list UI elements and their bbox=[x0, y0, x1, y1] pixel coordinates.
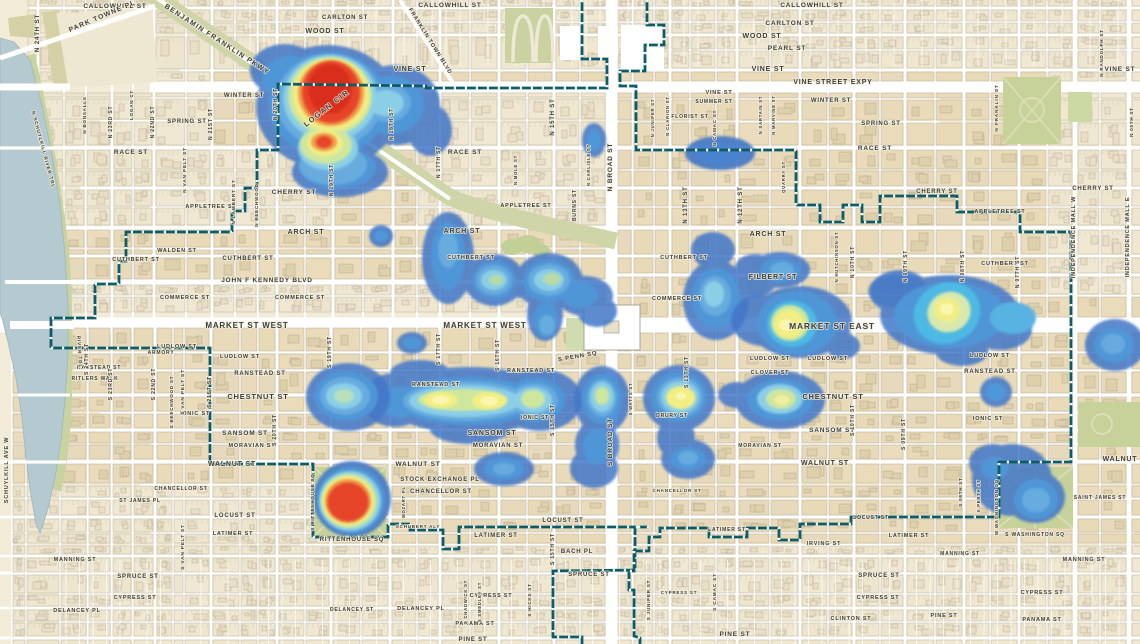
svg-text:BURNS ST: BURNS ST bbox=[572, 189, 578, 221]
svg-text:CHANCELLOR ST: CHANCELLOR ST bbox=[154, 486, 207, 492]
svg-text:IRVING ST: IRVING ST bbox=[807, 541, 842, 547]
svg-text:RANSTEAD ST: RANSTEAD ST bbox=[507, 368, 555, 374]
svg-text:APPLETREE ST: APPLETREE ST bbox=[185, 204, 236, 210]
svg-text:ARCH ST: ARCH ST bbox=[288, 229, 325, 236]
svg-text:WALNUT ST: WALNUT ST bbox=[208, 461, 256, 468]
svg-text:S HICKS ST: S HICKS ST bbox=[527, 583, 532, 616]
svg-text:S PERTH ST: S PERTH ST bbox=[976, 480, 981, 513]
svg-text:S 13TH ST: S 13TH ST bbox=[684, 356, 690, 388]
svg-text:SANSOM ST: SANSOM ST bbox=[809, 427, 855, 434]
svg-text:DELANCEY PL: DELANCEY PL bbox=[53, 608, 101, 614]
svg-text:RANSTEAD ST: RANSTEAD ST bbox=[964, 369, 1015, 375]
svg-text:CYPRESS ST: CYPRESS ST bbox=[1021, 590, 1064, 596]
svg-text:S 17TH ST: S 17TH ST bbox=[436, 333, 442, 365]
svg-text:VINE ST: VINE ST bbox=[752, 66, 785, 73]
svg-text:VINE ST: VINE ST bbox=[706, 90, 733, 96]
svg-text:N BEECHWOOD: N BEECHWOOD bbox=[254, 183, 259, 227]
svg-text:CHERRY ST: CHERRY ST bbox=[916, 189, 958, 195]
svg-text:S CHADWICK ST: S CHADWICK ST bbox=[463, 580, 468, 624]
svg-text:RACE ST: RACE ST bbox=[114, 149, 148, 156]
svg-text:PANAMA ST: PANAMA ST bbox=[455, 621, 494, 627]
svg-text:PEARL ST: PEARL ST bbox=[768, 45, 806, 52]
svg-text:WINTER ST: WINTER ST bbox=[811, 98, 851, 104]
svg-text:CUTHBERT ST: CUTHBERT ST bbox=[112, 257, 160, 263]
svg-text:PINE ST: PINE ST bbox=[459, 637, 488, 643]
svg-text:APPLETREE ST: APPLETREE ST bbox=[974, 209, 1025, 215]
svg-text:CYPRESS ST: CYPRESS ST bbox=[114, 595, 157, 601]
svg-text:LATIMER ST: LATIMER ST bbox=[474, 533, 518, 539]
svg-text:N 13TH ST: N 13TH ST bbox=[683, 186, 689, 223]
svg-text:CLINTON ST: CLINTON ST bbox=[831, 616, 872, 622]
svg-text:W WASHINGTON SQ: W WASHINGTON SQ bbox=[994, 479, 999, 535]
svg-text:WALNUT ST: WALNUT ST bbox=[395, 461, 440, 468]
svg-text:N 15TH ST: N 15TH ST bbox=[550, 98, 556, 135]
svg-text:LUDLOW ST: LUDLOW ST bbox=[808, 356, 848, 362]
svg-text:WALNUT: WALNUT bbox=[1103, 456, 1138, 463]
svg-text:MORAVIAN ST: MORAVIAN ST bbox=[229, 443, 276, 449]
svg-text:CHERRY ST: CHERRY ST bbox=[272, 189, 316, 196]
svg-text:LUDLOW ST: LUDLOW ST bbox=[220, 354, 260, 360]
svg-text:JOHN F KENNEDY BLVD: JOHN F KENNEDY BLVD bbox=[221, 277, 313, 284]
svg-text:PINE ST: PINE ST bbox=[720, 631, 751, 638]
svg-text:N SARTAIN ST: N SARTAIN ST bbox=[758, 96, 763, 135]
svg-text:N CLARION ST: N CLARION ST bbox=[665, 96, 670, 135]
svg-text:N 24TH ST: N 24TH ST bbox=[34, 14, 41, 52]
svg-text:N 23RD ST: N 23RD ST bbox=[108, 106, 114, 139]
svg-text:RITTENHOUSE SQ: RITTENHOUSE SQ bbox=[320, 537, 385, 543]
svg-text:CARLTON ST: CARLTON ST bbox=[322, 15, 368, 21]
svg-text:N 08TH ST: N 08TH ST bbox=[960, 250, 966, 282]
svg-text:LOCUST ST: LOCUST ST bbox=[853, 515, 889, 521]
svg-text:LUDLOW ST: LUDLOW ST bbox=[750, 356, 790, 362]
svg-text:FLORIST ST: FLORIST ST bbox=[671, 114, 708, 120]
svg-text:MARKET ST WEST: MARKET ST WEST bbox=[205, 321, 288, 330]
svg-text:S BROAD ST: S BROAD ST bbox=[607, 418, 614, 466]
svg-text:N JUNIPER ST: N JUNIPER ST bbox=[650, 99, 655, 137]
svg-text:S 19TH ST: S 19TH ST bbox=[327, 336, 333, 368]
svg-text:ARMORY: ARMORY bbox=[148, 350, 175, 356]
svg-text:CYPRESS ST: CYPRESS ST bbox=[661, 590, 698, 595]
svg-text:FILBERT ST: FILBERT ST bbox=[749, 274, 797, 281]
svg-text:N MARVINE ST: N MARVINE ST bbox=[771, 95, 776, 135]
svg-text:PANAMA ST: PANAMA ST bbox=[1022, 617, 1061, 623]
svg-text:SPRING ST: SPRING ST bbox=[861, 121, 901, 127]
svg-text:S 24TH ST: S 24TH ST bbox=[84, 343, 90, 375]
svg-text:DELANCEY PL: DELANCEY PL bbox=[397, 606, 445, 612]
svg-text:LUDLOW ST: LUDLOW ST bbox=[970, 353, 1010, 359]
svg-text:S 08TH ST: S 08TH ST bbox=[958, 477, 963, 506]
svg-text:N CARLISLE ST: N CARLISLE ST bbox=[586, 144, 591, 186]
svg-text:S WATTS ST: S WATTS ST bbox=[628, 383, 633, 416]
svg-text:MARKET ST WEST: MARKET ST WEST bbox=[443, 321, 526, 330]
svg-text:CUTHBERT ST: CUTHBERT ST bbox=[222, 256, 273, 262]
svg-text:MARKET ST EAST: MARKET ST EAST bbox=[789, 321, 875, 331]
svg-text:N 09TH ST: N 09TH ST bbox=[903, 250, 909, 282]
svg-text:ARCH ST: ARCH ST bbox=[750, 231, 787, 238]
svg-text:SCHUBERT ALY: SCHUBERT ALY bbox=[396, 524, 440, 529]
svg-text:SUMMER ST: SUMMER ST bbox=[695, 99, 732, 105]
svg-text:N FRANKLIN ST: N FRANKLIN ST bbox=[994, 84, 1000, 131]
svg-text:CHANCELLOR ST: CHANCELLOR ST bbox=[410, 489, 472, 495]
svg-text:RACE ST: RACE ST bbox=[858, 145, 892, 152]
svg-text:RANSTEAD ST: RANSTEAD ST bbox=[234, 371, 285, 377]
svg-text:SPRUCE ST: SPRUCE ST bbox=[117, 574, 159, 580]
svg-text:CYPRESS ST: CYPRESS ST bbox=[857, 595, 900, 601]
svg-text:N 07TH ST: N 07TH ST bbox=[1015, 256, 1021, 288]
svg-text:S CAMAC ST: S CAMAC ST bbox=[712, 573, 718, 611]
svg-text:N BONSALLS: N BONSALLS bbox=[82, 96, 87, 133]
svg-text:N 21ST ST: N 21ST ST bbox=[208, 108, 214, 140]
svg-text:S WASHINGTON SQ: S WASHINGTON SQ bbox=[1005, 532, 1065, 538]
svg-text:CUTHBERT ST: CUTHBERT ST bbox=[660, 255, 708, 261]
svg-text:SANSOM ST: SANSOM ST bbox=[222, 430, 268, 437]
svg-text:SPRING ST: SPRING ST bbox=[167, 119, 207, 125]
svg-text:LOCUST ST: LOCUST ST bbox=[214, 513, 255, 519]
svg-text:S JUNIPER ST: S JUNIPER ST bbox=[646, 580, 651, 620]
svg-text:APPLETREE ST: APPLETREE ST bbox=[500, 203, 551, 209]
svg-text:CUTHBERT ST: CUTHBERT ST bbox=[981, 261, 1029, 267]
svg-text:CALLOWHILL ST: CALLOWHILL ST bbox=[418, 2, 481, 9]
svg-text:SPRUCE ST: SPRUCE ST bbox=[568, 572, 610, 578]
svg-text:MANNING ST: MANNING ST bbox=[940, 551, 980, 557]
svg-text:N 17TH ST: N 17TH ST bbox=[436, 146, 442, 178]
svg-text:DELANCEY ST: DELANCEY ST bbox=[330, 607, 374, 613]
svg-text:MORAVIAN ST: MORAVIAN ST bbox=[473, 443, 523, 449]
svg-text:N MOLE ST: N MOLE ST bbox=[513, 155, 518, 185]
svg-text:N 20TH ST: N 20TH ST bbox=[273, 88, 279, 120]
svg-text:S 20TH ST: S 20TH ST bbox=[272, 414, 278, 446]
svg-text:N RANDOLPH ST: N RANDOLPH ST bbox=[1099, 29, 1104, 76]
svg-text:MORAVIAN ST: MORAVIAN ST bbox=[738, 443, 781, 449]
svg-text:PINE ST: PINE ST bbox=[931, 613, 958, 619]
svg-text:S 15TH ST: S 15TH ST bbox=[550, 533, 556, 565]
svg-text:MANNING ST: MANNING ST bbox=[1063, 557, 1106, 563]
svg-text:CARLTON ST: CARLTON ST bbox=[765, 20, 814, 27]
svg-text:VINE ST: VINE ST bbox=[394, 66, 427, 73]
svg-text:N HUTCHINSON ST: N HUTCHINSON ST bbox=[834, 232, 839, 283]
svg-text:LOGAN CT: LOGAN CT bbox=[129, 90, 134, 120]
svg-text:SANSOM ST: SANSOM ST bbox=[468, 430, 517, 437]
svg-text:COMMERCE ST: COMMERCE ST bbox=[652, 296, 702, 302]
svg-text:LATIMER ST: LATIMER ST bbox=[708, 527, 746, 533]
svg-text:BACH PL: BACH PL bbox=[561, 549, 593, 555]
svg-text:IONIC ST: IONIC ST bbox=[973, 416, 1003, 422]
svg-text:N 12TH ST: N 12TH ST bbox=[738, 186, 744, 223]
svg-text:WALNUT ST: WALNUT ST bbox=[801, 460, 849, 467]
svg-text:S 15TH ST: S 15TH ST bbox=[550, 404, 556, 436]
svg-text:N 18TH ST: N 18TH ST bbox=[389, 108, 395, 140]
svg-text:N BROAD ST: N BROAD ST bbox=[607, 143, 614, 191]
svg-text:S 21ST ST: S 21ST ST bbox=[207, 376, 213, 408]
svg-text:S 23RD ST: S 23RD ST bbox=[108, 368, 114, 401]
svg-text:ARCH ST: ARCH ST bbox=[444, 228, 481, 235]
svg-text:CHANCELLOR ST: CHANCELLOR ST bbox=[653, 488, 702, 493]
svg-text:CHERRY ST: CHERRY ST bbox=[1072, 186, 1114, 192]
svg-text:N 22ND ST: N 22ND ST bbox=[150, 106, 156, 139]
svg-text:SCHUYLKILL AVE W: SCHUYLKILL AVE W bbox=[4, 437, 10, 503]
svg-text:WALDEN ST: WALDEN ST bbox=[157, 248, 197, 254]
svg-text:WOOD ST: WOOD ST bbox=[742, 33, 781, 40]
svg-text:SPRUCE ST: SPRUCE ST bbox=[858, 573, 900, 579]
svg-text:RACE ST: RACE ST bbox=[448, 149, 482, 156]
svg-text:LATIMER ST: LATIMER ST bbox=[889, 533, 930, 539]
svg-text:COMMERCE ST: COMMERCE ST bbox=[275, 295, 325, 301]
svg-text:LATIMER ST: LATIMER ST bbox=[213, 531, 254, 537]
svg-text:CYPRESS ST: CYPRESS ST bbox=[470, 593, 513, 599]
svg-text:VINE STREET EXPY: VINE STREET EXPY bbox=[793, 79, 872, 86]
svg-text:CALLOWHILL ST: CALLOWHILL ST bbox=[780, 2, 843, 9]
svg-text:COMMERCE ST: COMMERCE ST bbox=[160, 295, 210, 301]
svg-text:S 16TH ST: S 16TH ST bbox=[495, 339, 501, 371]
svg-text:MOZART PL: MOZART PL bbox=[401, 486, 406, 518]
svg-text:N 05TH ST: N 05TH ST bbox=[1129, 107, 1134, 137]
svg-text:WINTER ST: WINTER ST bbox=[224, 93, 264, 99]
svg-text:LOCUST ST: LOCUST ST bbox=[542, 518, 583, 524]
svg-text:S RITTENHOUSE SQ: S RITTENHOUSE SQ bbox=[310, 473, 315, 530]
svg-text:S VAN PELT ST: S VAN PELT ST bbox=[180, 369, 186, 414]
svg-text:RANSTEAD ST: RANSTEAD ST bbox=[412, 382, 460, 388]
svg-text:S 09TH ST: S 09TH ST bbox=[901, 418, 907, 450]
svg-text:N LAMBERT ST: N LAMBERT ST bbox=[231, 179, 237, 224]
svg-text:STOCK EXCHANGE PL: STOCK EXCHANGE PL bbox=[400, 477, 480, 483]
svg-text:DRURY ST: DRURY ST bbox=[656, 413, 688, 419]
svg-text:N CAMAC ST: N CAMAC ST bbox=[712, 110, 717, 146]
svg-text:S SMEDLEY ST: S SMEDLEY ST bbox=[477, 582, 482, 622]
svg-text:N 10TH ST: N 10TH ST bbox=[850, 246, 856, 278]
svg-text:S VAN PELT ST: S VAN PELT ST bbox=[180, 524, 186, 569]
svg-text:CLOVER ST: CLOVER ST bbox=[751, 370, 790, 376]
svg-text:N VAN PELT ST: N VAN PELT ST bbox=[182, 147, 188, 193]
svg-text:S 10TH ST: S 10TH ST bbox=[850, 404, 856, 436]
svg-text:INDEPENDENCE MALL E: INDEPENDENCE MALL E bbox=[1125, 197, 1131, 278]
svg-text:WOOD ST: WOOD ST bbox=[305, 28, 344, 35]
svg-text:CHESTNUT ST: CHESTNUT ST bbox=[227, 392, 288, 401]
svg-text:QUARRY ST: QUARRY ST bbox=[781, 161, 786, 193]
svg-text:S 22ND ST: S 22ND ST bbox=[151, 368, 157, 401]
svg-text:ST JAMES PL: ST JAMES PL bbox=[119, 498, 161, 504]
svg-text:N 19TH ST: N 19TH ST bbox=[329, 164, 335, 196]
svg-text:CHESTNUT ST: CHESTNUT ST bbox=[802, 392, 863, 401]
svg-text:VINE ST: VINE ST bbox=[1105, 66, 1136, 73]
svg-text:INDEPENDENCE MALL W: INDEPENDENCE MALL W bbox=[1071, 196, 1077, 278]
svg-text:SAINT JAMES ST: SAINT JAMES ST bbox=[1074, 495, 1127, 501]
svg-text:MANNING ST: MANNING ST bbox=[54, 557, 97, 563]
svg-text:CUTHBERT ST: CUTHBERT ST bbox=[447, 255, 495, 261]
svg-text:IONIC ST: IONIC ST bbox=[521, 415, 549, 421]
svg-text:S BEECHWOOD ST: S BEECHWOOD ST bbox=[169, 376, 174, 429]
